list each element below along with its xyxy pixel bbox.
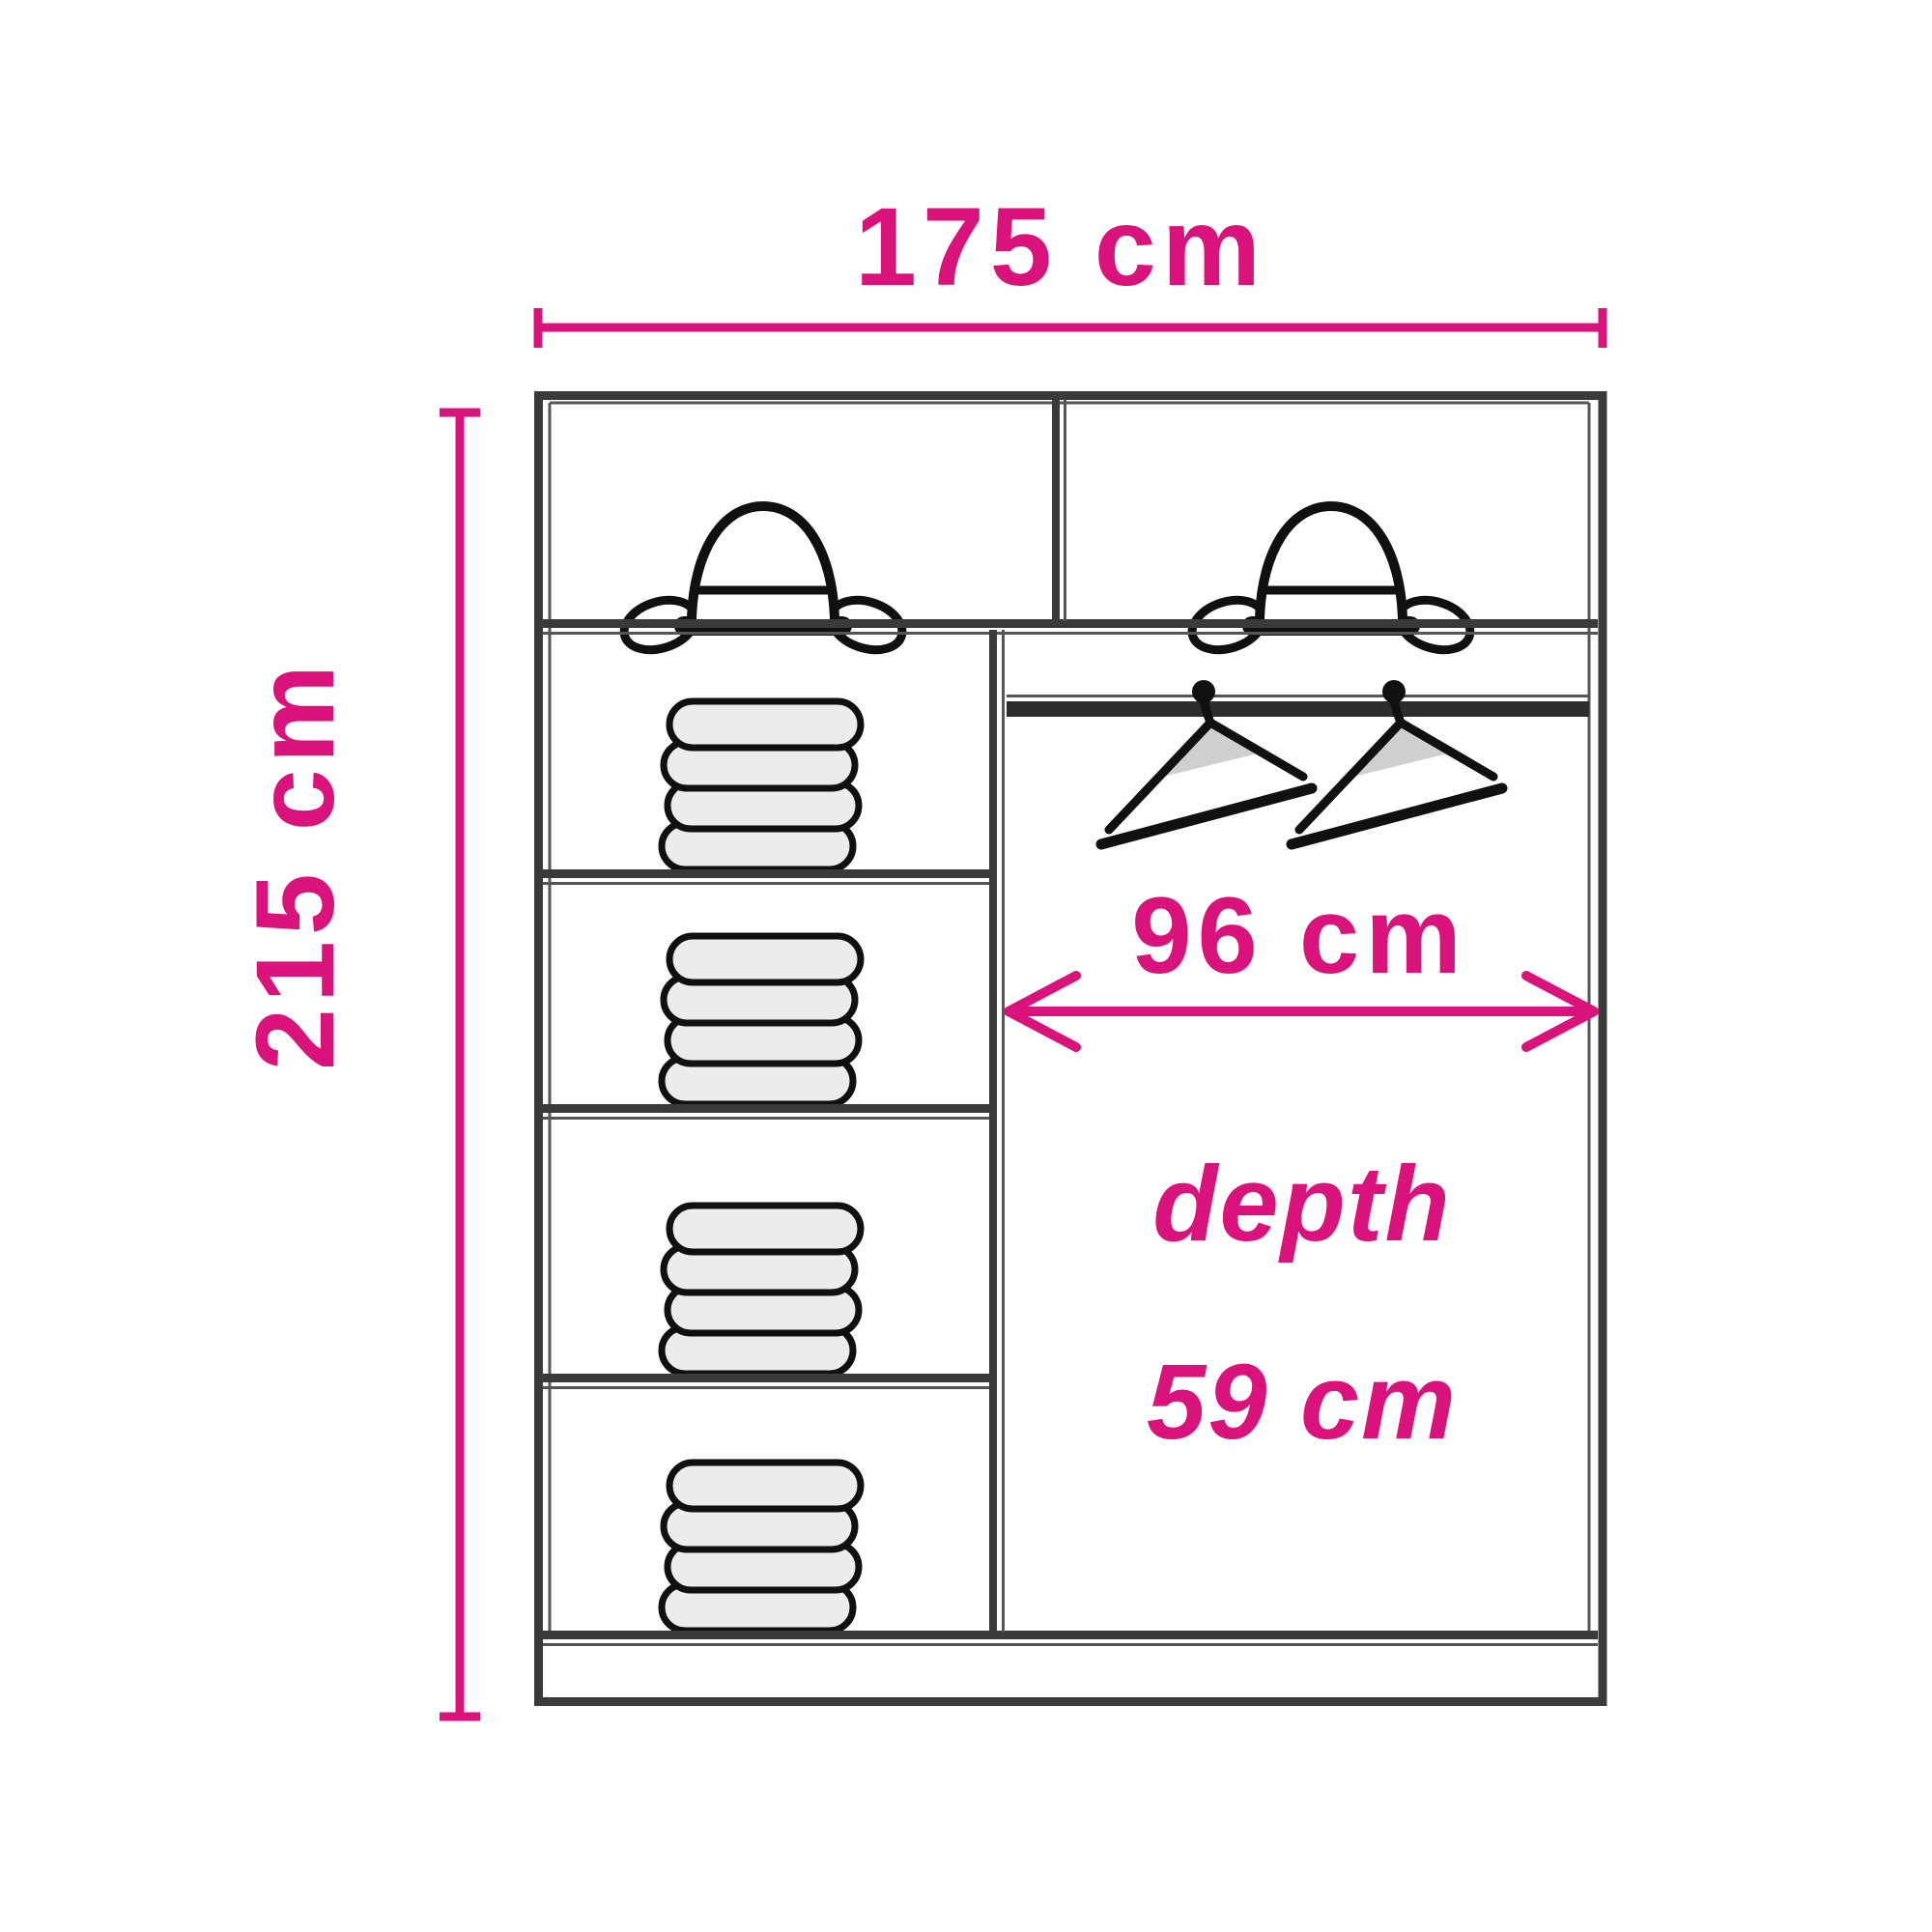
folded-towel xyxy=(669,1463,861,1509)
folded-towel xyxy=(669,701,861,748)
main-column-divider-thin xyxy=(1002,630,1005,1633)
width-dimension: 175 cm xyxy=(534,185,1607,348)
shelf xyxy=(543,619,1598,635)
width-dimension-right-tick xyxy=(1599,308,1607,348)
rod-bar xyxy=(1007,701,1589,717)
shelf xyxy=(543,1104,991,1120)
main-column-divider-thick xyxy=(989,630,997,1633)
folded-towel xyxy=(669,1206,861,1252)
shelf xyxy=(543,869,991,885)
height-dimension-label: 215 cm xyxy=(234,659,357,1070)
width-dimension-left-tick xyxy=(534,308,543,348)
wardrobe-diagram: 175 cm 215 cm 96 cm depth 59 cm xyxy=(0,0,1932,1932)
width-dimension-label: 175 cm xyxy=(855,185,1266,309)
folded-towel-stack-icon xyxy=(662,701,861,869)
folded-towel xyxy=(669,936,861,982)
inner-width-label: 96 cm xyxy=(1131,875,1467,996)
depth-value-label: 59 cm xyxy=(1147,1343,1458,1462)
top-hat-divider-thin xyxy=(1064,400,1066,621)
folded-towel-stack-icon xyxy=(662,1206,861,1374)
height-dimension-top-tick xyxy=(440,409,480,417)
shelf xyxy=(543,1631,1598,1646)
height-dimension: 215 cm xyxy=(234,409,480,1721)
depth-word-label: depth xyxy=(1152,1145,1451,1264)
wardrobe-dimension-diagram-page: 175 cm 215 cm 96 cm depth 59 cm xyxy=(0,0,1932,1932)
folded-towel-stack-icon xyxy=(662,936,861,1104)
height-dimension-bottom-tick xyxy=(440,1713,480,1721)
rod-thin-line xyxy=(1007,695,1589,697)
top-hat-divider-thick xyxy=(1052,400,1060,621)
folded-towel-stack-icon xyxy=(662,1463,861,1631)
shelf xyxy=(543,1374,991,1389)
